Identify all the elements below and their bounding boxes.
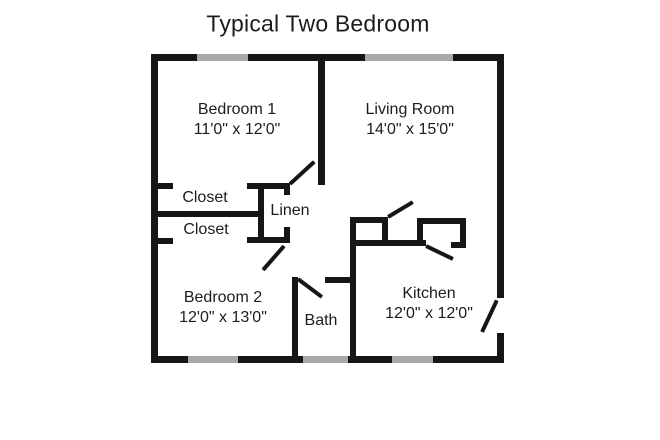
wall-outer-bottom-4 — [433, 356, 504, 363]
wall-closet1-stub — [151, 183, 173, 189]
bedroom1-name: Bedroom 1 — [194, 100, 281, 120]
window-bottom-bath — [303, 356, 348, 363]
wall-linen-vertical — [258, 183, 264, 243]
wall-linen-bottom-jamb — [284, 227, 290, 243]
window-top-living — [365, 54, 453, 61]
plan-title: Typical Two Bedroom — [206, 11, 429, 38]
wall-outer-right-upper — [497, 54, 504, 298]
wall-bath-top-stub — [325, 277, 353, 283]
window-bottom-bedroom2 — [188, 356, 238, 363]
bedroom1-label: Bedroom 1 11'0" x 12'0" — [194, 100, 281, 140]
kitchen-dims: 12'0" x 12'0" — [385, 304, 473, 324]
wall-closet-divider — [151, 211, 264, 217]
wall-linen-top-jamb — [284, 183, 290, 195]
door-swing-kitchen-nook — [387, 200, 414, 218]
wall-kitchen-top — [350, 240, 426, 246]
door-swing-bedroom1 — [289, 160, 316, 185]
window-bottom-kitchen — [392, 356, 433, 363]
door-swing-entry — [480, 299, 498, 332]
wall-pantry-foot — [451, 242, 466, 248]
wall-outer-bottom-1 — [151, 356, 188, 363]
wall-closet2-stub — [151, 238, 173, 244]
closet2-label: Closet — [183, 220, 228, 240]
bedroom2-dims: 12'0" x 13'0" — [179, 308, 267, 328]
bedroom2-label: Bedroom 2 12'0" x 13'0" — [179, 288, 267, 328]
wall-pantry-top — [417, 218, 466, 224]
bedroom1-dims: 11'0" x 12'0" — [194, 120, 281, 140]
floorplan: Typical Two Bedroom Bedroom 1 11'0" x 12… — [0, 0, 660, 440]
kitchen-name: Kitchen — [385, 284, 473, 304]
living-room-label: Living Room 14'0" x 15'0" — [366, 100, 455, 140]
wall-bedroom2-bath-divider — [292, 277, 298, 363]
kitchen-label: Kitchen 12'0" x 12'0" — [385, 284, 473, 324]
bedroom2-name: Bedroom 2 — [179, 288, 267, 308]
door-swing-bedroom2 — [261, 245, 285, 272]
living-room-dims: 14'0" x 15'0" — [366, 120, 455, 140]
wall-outer-top-2 — [248, 54, 365, 61]
living-room-name: Living Room — [366, 100, 455, 120]
door-swing-kitchen — [425, 244, 454, 261]
door-swing-bath — [297, 277, 323, 298]
wall-outer-top-1 — [151, 54, 197, 61]
bath-label: Bath — [305, 311, 338, 331]
closet1-label: Closet — [182, 188, 227, 208]
window-top-bedroom1 — [197, 54, 248, 61]
wall-outer-left — [151, 54, 158, 363]
wall-bedroom1-living-divider — [318, 54, 325, 185]
linen-label: Linen — [270, 201, 309, 221]
wall-bath-kitchen-divider — [350, 217, 356, 363]
